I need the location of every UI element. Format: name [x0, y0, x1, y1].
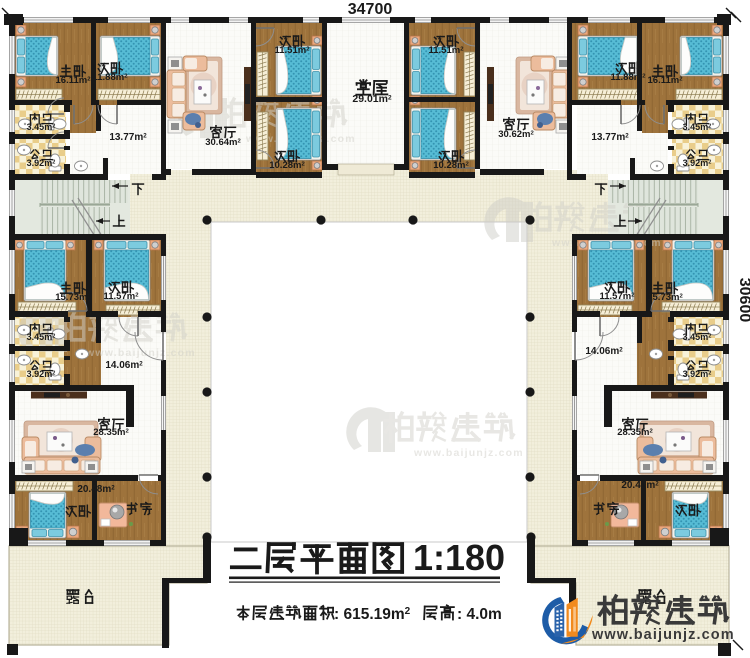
svg-text:30.64m2: 30.64m2 — [205, 137, 241, 148]
svg-text:13.77m2: 13.77m2 — [591, 132, 629, 143]
svg-text:11.57m2: 11.57m2 — [104, 291, 140, 302]
svg-text:3.92m2: 3.92m2 — [683, 369, 712, 379]
svg-text:16.11m2: 16.11m2 — [56, 75, 92, 86]
svg-text:16.11m2: 16.11m2 — [648, 75, 684, 86]
svg-text:www.baijunjz.com: www.baijunjz.com — [591, 627, 735, 643]
svg-text:11.88m2: 11.88m2 — [93, 72, 129, 83]
svg-text:14.06m2: 14.06m2 — [105, 360, 143, 371]
svg-text:www.baijunjz.com: www.baijunjz.com — [413, 447, 524, 459]
svg-text:3.45m2: 3.45m2 — [683, 122, 712, 132]
svg-text:20.48m2: 20.48m2 — [77, 484, 115, 495]
svg-text:20.48m2: 20.48m2 — [621, 480, 659, 491]
svg-text:30.62m2: 30.62m2 — [498, 129, 534, 140]
svg-text:28.35m2: 28.35m2 — [93, 427, 129, 438]
svg-text:3.45m2: 3.45m2 — [27, 122, 56, 132]
svg-text:10.28m2: 10.28m2 — [433, 160, 469, 171]
svg-text:: 4.0m: : 4.0m — [457, 606, 502, 623]
svg-text:11.88m2: 11.88m2 — [611, 72, 647, 83]
svg-text:3.45m2: 3.45m2 — [27, 332, 56, 342]
svg-text:14.06m2: 14.06m2 — [585, 346, 623, 357]
svg-text:15.73m2: 15.73m2 — [55, 292, 91, 303]
svg-text:: 615.19m2: : 615.19m2 — [334, 606, 411, 623]
svg-text:15.73m2: 15.73m2 — [647, 292, 683, 303]
svg-text:3.92m2: 3.92m2 — [683, 158, 712, 168]
svg-text:30600: 30600 — [736, 278, 750, 323]
svg-text:29.01m2: 29.01m2 — [352, 93, 392, 105]
svg-text:3.92m2: 3.92m2 — [27, 369, 56, 379]
svg-text:11.51m2: 11.51m2 — [275, 45, 311, 56]
svg-text:3.45m2: 3.45m2 — [683, 332, 712, 342]
svg-text:34700: 34700 — [348, 1, 393, 18]
svg-text:11.51m2: 11.51m2 — [429, 45, 465, 56]
svg-text:1:180: 1:180 — [413, 537, 505, 578]
svg-text:3.92m2: 3.92m2 — [27, 158, 56, 168]
svg-text:28.35m2: 28.35m2 — [617, 427, 653, 438]
svg-text:13.77m2: 13.77m2 — [109, 132, 147, 143]
svg-text:11.57m2: 11.57m2 — [600, 291, 636, 302]
svg-text:10.28m2: 10.28m2 — [269, 160, 305, 171]
